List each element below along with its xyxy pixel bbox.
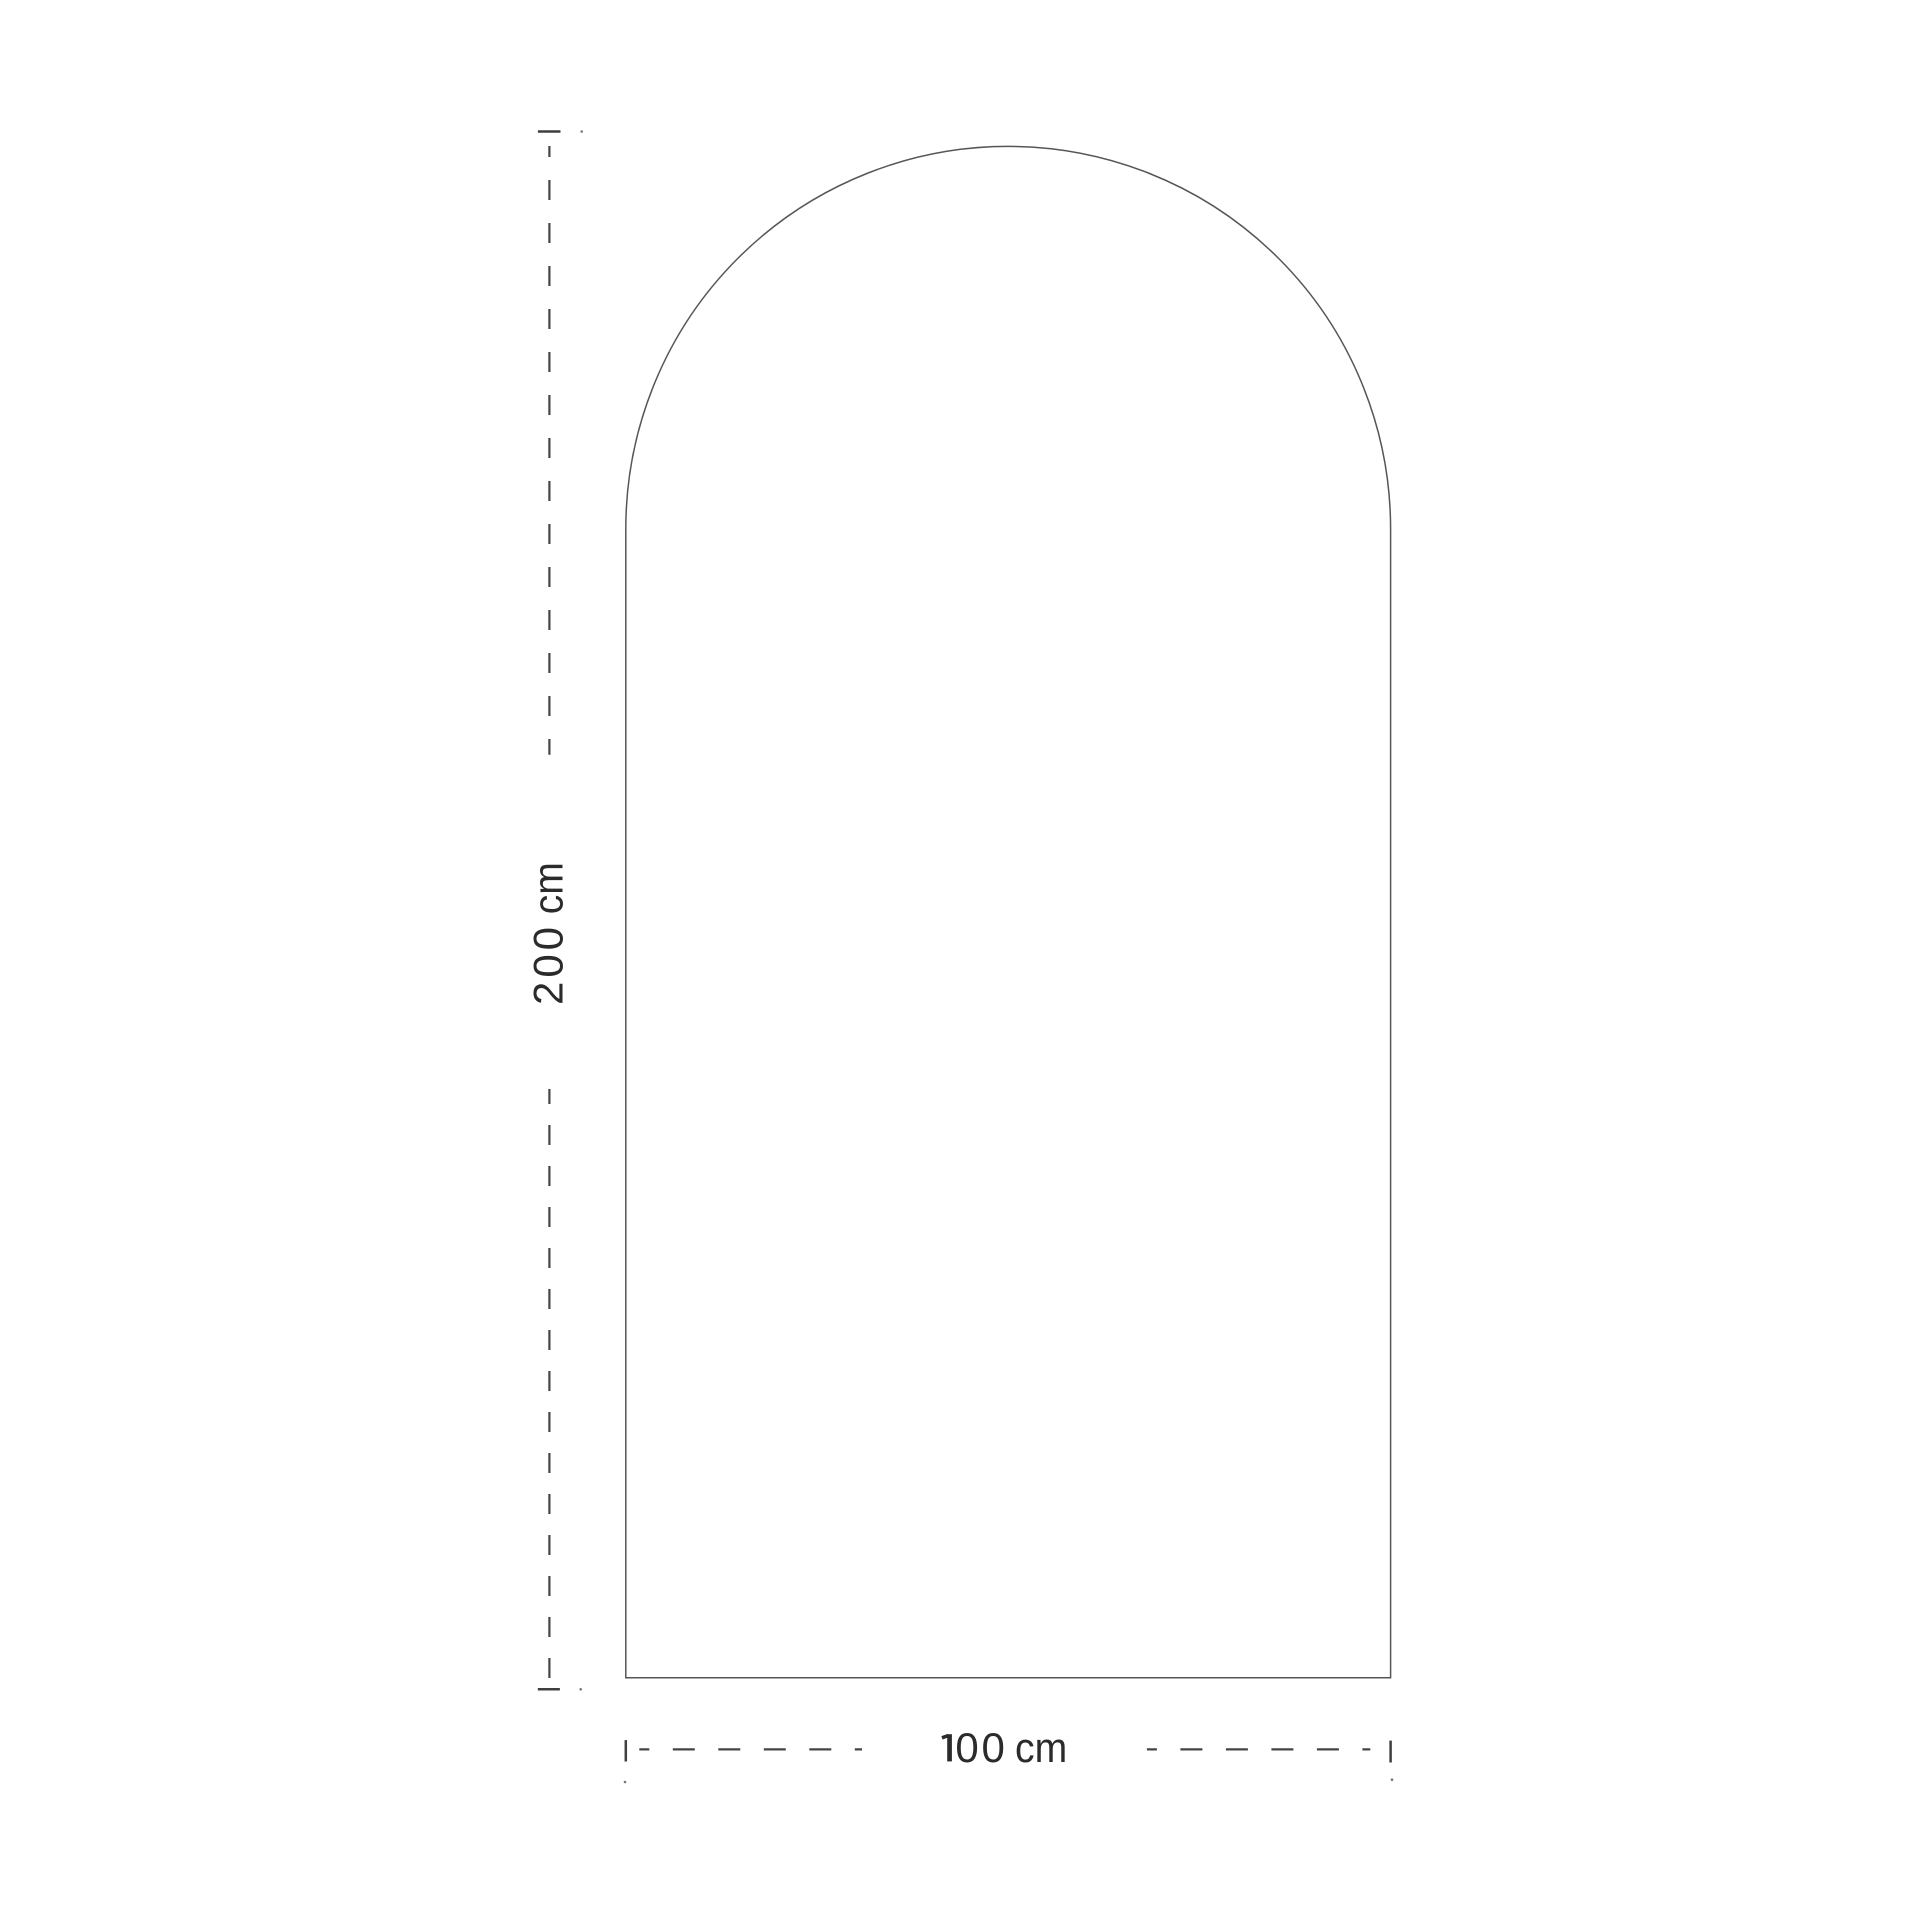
svg-text:cm: cm	[1015, 1724, 1067, 1771]
svg-text:200: 200	[525, 923, 572, 1005]
svg-text:cm: cm	[525, 862, 572, 914]
svg-text:00: 00	[955, 1724, 1007, 1771]
